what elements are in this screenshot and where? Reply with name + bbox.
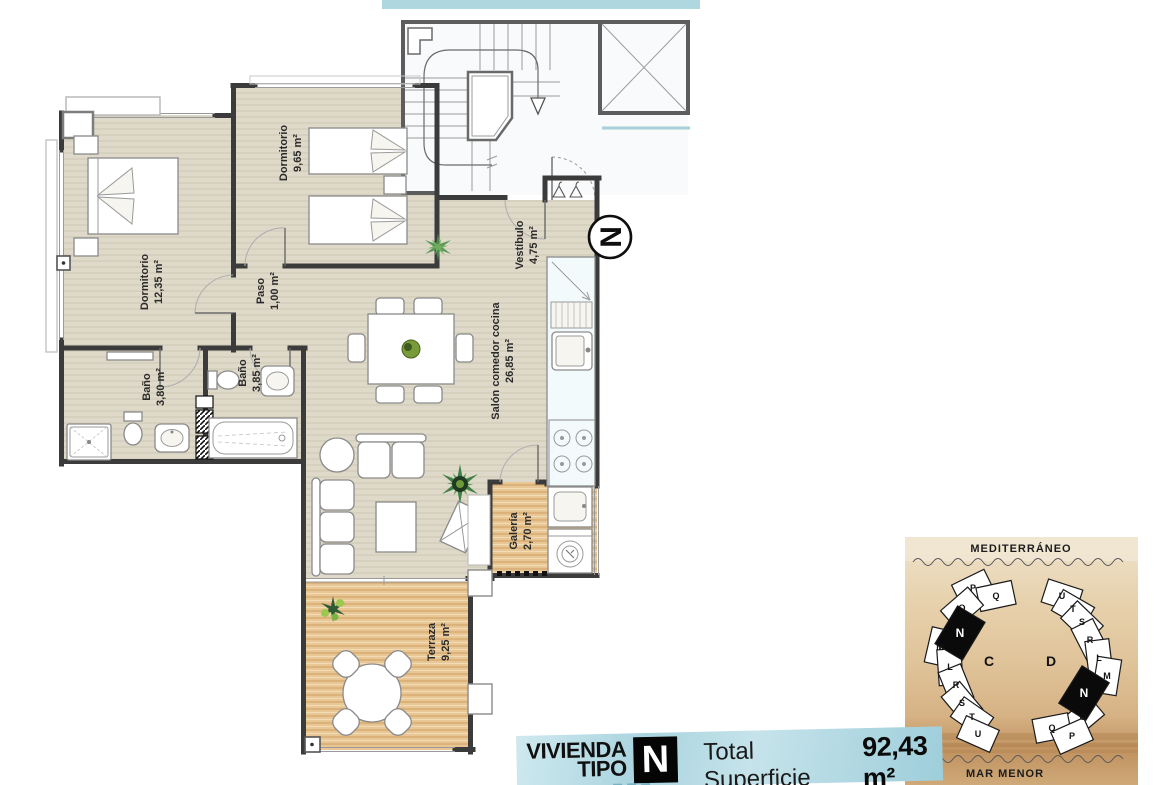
room-area-terraza: 9,25 m²	[440, 623, 452, 661]
room-label-paso: Paso	[255, 278, 267, 305]
map-label-mediterraneo: MEDITERRÁNEO	[970, 542, 1071, 555]
floor-plan: N Dormitorio 12,35 m² Dormitorio 9,65 m²…	[0, 0, 720, 785]
type-letter-badge: N	[633, 736, 678, 783]
unit-letter: L	[1096, 653, 1102, 663]
room-label-terraza: Terraza	[426, 622, 438, 661]
compass-north-label: N	[594, 226, 627, 248]
page: N Dormitorio 12,35 m² Dormitorio 9,65 m²…	[0, 0, 1170, 785]
building-d-label: D	[1046, 653, 1056, 669]
compass-icon: N	[589, 216, 631, 258]
unit-letter: R	[953, 680, 960, 690]
map-label-mar-menor: MAR MENOR	[966, 768, 1044, 780]
unit-letter: P	[1069, 731, 1075, 741]
unit-letter: S	[1079, 617, 1085, 627]
unit-letter: Q	[1048, 723, 1055, 733]
unit-letter: M	[936, 642, 944, 652]
room-area-paso: 1,00 m²	[269, 272, 281, 310]
room-area-bano1: 3,80 m²	[155, 368, 167, 406]
room-label-dormitorio2: Dormitorio	[278, 125, 290, 182]
unit-letter: S	[959, 698, 965, 708]
title-block: VIVIENDA TIPO N Total Superficie 92,43 m…	[516, 726, 943, 785]
total-surface-label: Total Superficie	[703, 736, 847, 785]
stairwell	[382, 0, 700, 200]
unit-letter: T	[1070, 604, 1076, 614]
room-area-bano2: 3,85 m²	[251, 354, 263, 392]
room-area-vestibulo: 4,75 m²	[528, 226, 540, 264]
pillar	[468, 684, 492, 714]
room-label-bano2: Baño	[237, 359, 249, 387]
unit-letter: Q	[992, 591, 999, 601]
unit-letter: U	[1059, 591, 1066, 601]
unit-letter: M	[1103, 671, 1111, 681]
room-label-bano1: Baño	[141, 373, 153, 401]
unit-letter: P	[970, 583, 976, 593]
unit-letter: T	[969, 712, 975, 722]
room-label-salon: Salón comedor cocina	[490, 301, 502, 419]
kitchen	[547, 257, 595, 486]
total-surface-value: 92,43 m²	[862, 730, 954, 785]
dwelling-type-name: VIVIENDA TIPO	[526, 738, 627, 780]
room-area-dormitorio2: 9,65 m²	[292, 134, 304, 172]
unit-letter: O	[1079, 712, 1086, 722]
pillar	[63, 112, 93, 138]
unit-letter: L	[947, 662, 953, 672]
surface-summary: Total Superficie 92,43 m² * Incluyendo z…	[703, 730, 954, 785]
unit-letter: R	[1087, 635, 1094, 645]
room-area-salon: 26,85 m²	[504, 339, 516, 383]
unit-letter-highlight: N	[956, 626, 965, 640]
room-label-galeria: Galería	[508, 511, 520, 549]
blue-top-band	[382, 0, 700, 9]
room-area-dormitorio1: 12,35 m²	[153, 260, 165, 304]
type-letter: N	[641, 738, 669, 782]
unit-letter-highlight: N	[1080, 686, 1089, 700]
room-label-dormitorio1: Dormitorio	[139, 254, 151, 311]
room-label-vestibulo: Vestíbulo	[514, 220, 526, 269]
room-area-galeria: 2,70 m²	[522, 512, 534, 550]
building-c-label: C	[984, 653, 994, 669]
title-line2: TIPO	[577, 758, 627, 778]
unit-letter: U	[975, 729, 982, 739]
unit-letter: O	[958, 603, 965, 613]
